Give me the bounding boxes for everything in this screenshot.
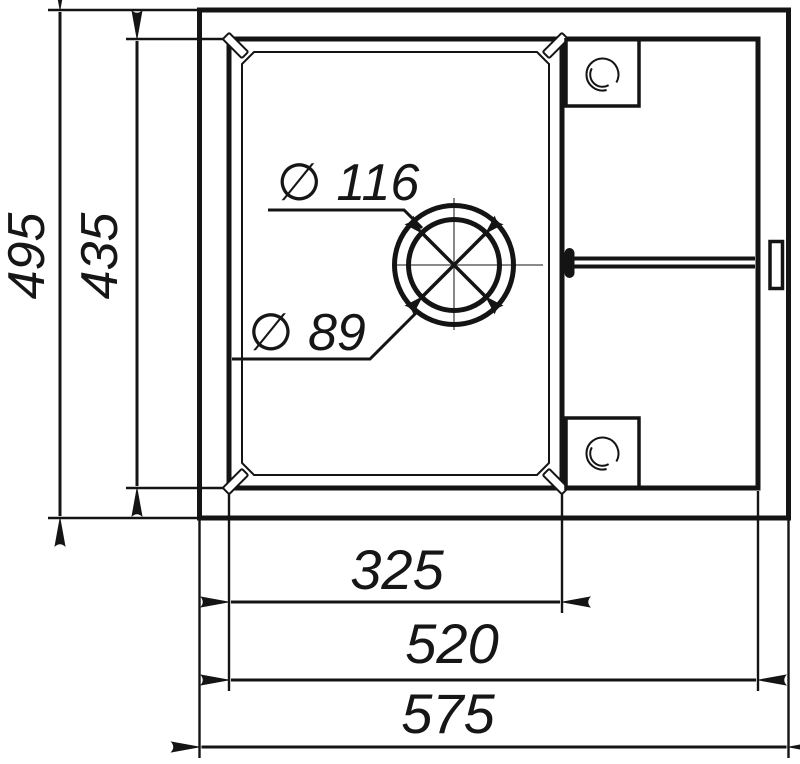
dia-label-89: ∅ 89 <box>248 304 366 362</box>
clamp-clip-bottom-outer-ring <box>586 438 618 470</box>
dim-label-435: 435 <box>71 212 129 300</box>
drain-hole <box>395 198 544 330</box>
clamp-bracket-bottom <box>566 418 639 490</box>
clamp-clip-top-outer-ring <box>586 59 618 91</box>
divider-end-cap <box>565 248 575 278</box>
dim-label-495: 495 <box>0 212 56 300</box>
leader-diameter-116 <box>268 210 422 228</box>
overflow-tab <box>770 242 783 289</box>
drawing-page: 495 435 325 520 575 ∅ 116 ∅ 89 <box>0 0 800 764</box>
drainer-divider <box>565 248 756 278</box>
clamp-bracket-bottom-outline <box>566 418 639 490</box>
clamp-clip-bottom-inner-ring <box>590 447 608 465</box>
sink-technical-drawing-canvas: 495 435 325 520 575 ∅ 116 ∅ 89 <box>0 0 800 764</box>
sink-outer-outline <box>200 10 789 518</box>
dim-label-520: 520 <box>405 612 498 675</box>
dia-label-116: ∅ 116 <box>277 154 420 212</box>
clamp-clip-top-inner-ring <box>590 68 608 86</box>
dim-label-575: 575 <box>401 682 495 745</box>
sink-rim-outline <box>229 39 758 488</box>
dim-label-325: 325 <box>350 538 444 601</box>
clamp-bracket-top-outline <box>566 38 639 106</box>
clamp-bracket-top <box>566 38 639 106</box>
